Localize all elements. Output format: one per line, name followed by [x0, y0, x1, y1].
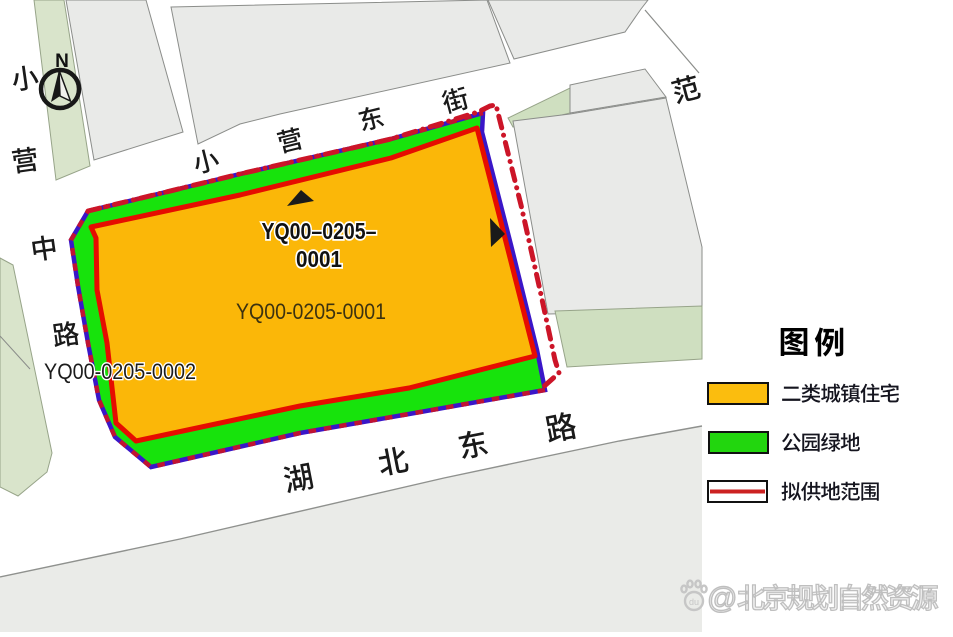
svg-text:N: N — [55, 51, 69, 72]
svg-text:0001: 0001 — [296, 246, 342, 272]
svg-text:@: @ — [707, 582, 737, 615]
svg-text:du: du — [689, 597, 699, 607]
svg-text:YQ00-0205-0002: YQ00-0205-0002 — [44, 359, 196, 384]
svg-text:YQ00–0205–: YQ00–0205– — [262, 218, 377, 244]
svg-text:YQ00-0205-0001: YQ00-0205-0001 — [236, 299, 386, 324]
